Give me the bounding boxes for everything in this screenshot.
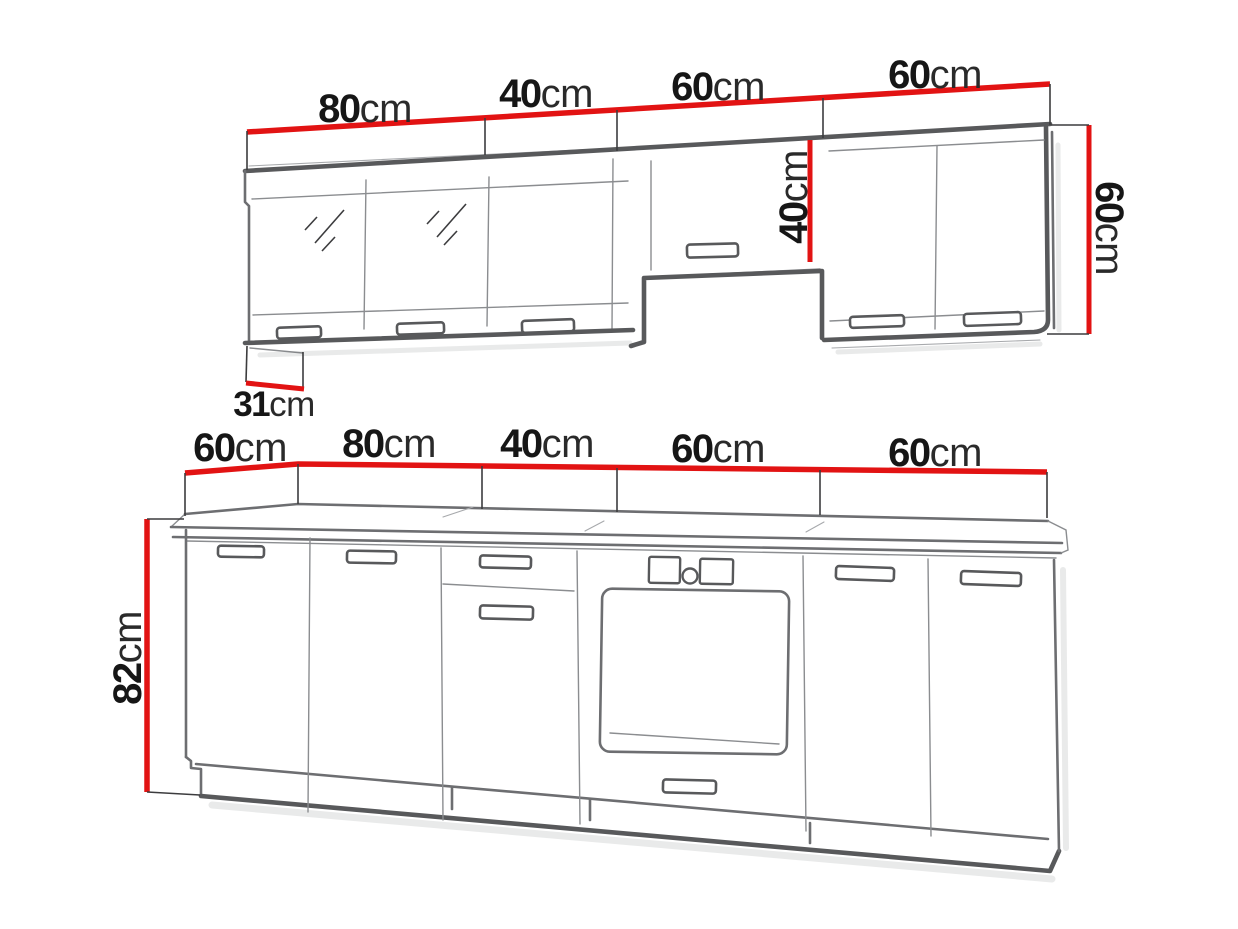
countertop-right-end bbox=[1048, 521, 1068, 553]
upper-left-bottom-rail bbox=[253, 303, 628, 315]
drawer-handle bbox=[480, 555, 531, 568]
base-divider-60-60 bbox=[928, 559, 931, 836]
hood-opening-frame bbox=[631, 271, 822, 346]
dim-base-cabinet-height: 82cm bbox=[106, 611, 150, 705]
upper-right-side-panel bbox=[1052, 132, 1054, 328]
countertop-left-end bbox=[171, 514, 185, 527]
kitchen-dimension-diagram: 80cm 40cm 60cm 60cm 40cm 60cm 31cm bbox=[0, 0, 1238, 929]
upper-left-door-divider-1 bbox=[364, 180, 366, 329]
base-carcass bbox=[186, 530, 1066, 879]
oven-handle bbox=[663, 779, 716, 793]
dim-mid-cabinet-height: 40cm bbox=[772, 150, 816, 244]
diagram-canvas: 80cm 40cm 60cm 60cm 40cm 60cm 31cm bbox=[0, 0, 1238, 929]
dim-base-width-1: 60cm bbox=[193, 426, 287, 470]
door-handle bbox=[218, 546, 264, 558]
base-right-shadow bbox=[1063, 570, 1066, 848]
door-handle bbox=[480, 605, 533, 619]
door-handle bbox=[964, 312, 1021, 326]
door-handle bbox=[836, 566, 894, 581]
door-handle bbox=[850, 315, 904, 328]
upper-left-door-divider-2 bbox=[487, 177, 489, 326]
dimension-line-mid-height: 40cm bbox=[772, 140, 816, 262]
dim-right-cabinet-height: 60cm bbox=[1087, 181, 1131, 275]
glass-reflection-marks-door1 bbox=[305, 210, 344, 251]
dim-upper-width-2: 40cm bbox=[499, 72, 593, 116]
base-cabinets-drawing bbox=[171, 504, 1068, 879]
dim-base-width-3: 40cm bbox=[500, 422, 594, 466]
upper-right-side-shadow bbox=[1058, 145, 1059, 330]
plinth-shadow bbox=[212, 805, 1052, 879]
door-handle bbox=[397, 322, 444, 335]
base-divider-40-oven bbox=[577, 551, 580, 824]
base-right-edge bbox=[1054, 560, 1059, 851]
drawer-divider-line bbox=[443, 584, 574, 591]
dim-base-width-5: 60cm bbox=[888, 431, 982, 475]
upper-top-edge bbox=[245, 124, 1050, 171]
upper-right-door-divider bbox=[935, 146, 937, 329]
upper-right-cabinet bbox=[824, 127, 1059, 352]
dim-upper-width-4: 60cm bbox=[888, 53, 982, 97]
door-handle bbox=[522, 319, 574, 333]
base-divider-oven-60 bbox=[803, 556, 806, 831]
dim-cabinet-depth: 31cm bbox=[233, 385, 315, 424]
dim-base-width-2: 80cm bbox=[342, 422, 436, 466]
door-handle bbox=[961, 571, 1021, 586]
upper-left-side-edge bbox=[245, 171, 249, 341]
upper-right-shadow bbox=[838, 344, 1040, 352]
upper-left-right-edge bbox=[612, 159, 613, 331]
countertop-joint-mark bbox=[806, 522, 824, 532]
door-handle bbox=[687, 243, 738, 257]
door-handle bbox=[347, 551, 396, 564]
dim-upper-width-3: 60cm bbox=[671, 65, 765, 109]
oven-display bbox=[649, 557, 680, 584]
base-divider-60-80 bbox=[308, 538, 310, 812]
countertop bbox=[171, 504, 1068, 553]
dimension-line-upper-widths: 80cm 40cm 60cm 60cm bbox=[247, 53, 1050, 170]
oven-window-inner-line bbox=[610, 733, 779, 744]
countertop-joint-mark bbox=[585, 521, 604, 531]
dim-base-width-4: 60cm bbox=[671, 427, 765, 471]
built-in-oven bbox=[600, 557, 790, 794]
dimension-line-depth: 31cm bbox=[233, 346, 315, 424]
base-divider-80-40 bbox=[441, 548, 443, 820]
base-doors-bottom-line bbox=[196, 764, 1048, 839]
base-left-plinth-step bbox=[186, 757, 201, 795]
upper-left-top-rail bbox=[252, 181, 628, 199]
glass-reflection-marks-door2 bbox=[427, 204, 466, 245]
door-handle bbox=[277, 326, 321, 339]
dimension-annotations: 80cm 40cm 60cm 60cm 40cm 60cm 31cm bbox=[106, 53, 1131, 795]
upper-left-shadow bbox=[260, 343, 630, 355]
upper-cabinets-drawing bbox=[245, 124, 1059, 355]
oven-display bbox=[700, 559, 733, 585]
oven-knob bbox=[683, 569, 698, 584]
dim-upper-width-1: 80cm bbox=[318, 87, 412, 131]
oven-door-window bbox=[600, 589, 790, 755]
upper-left-cabinet bbox=[245, 159, 633, 355]
